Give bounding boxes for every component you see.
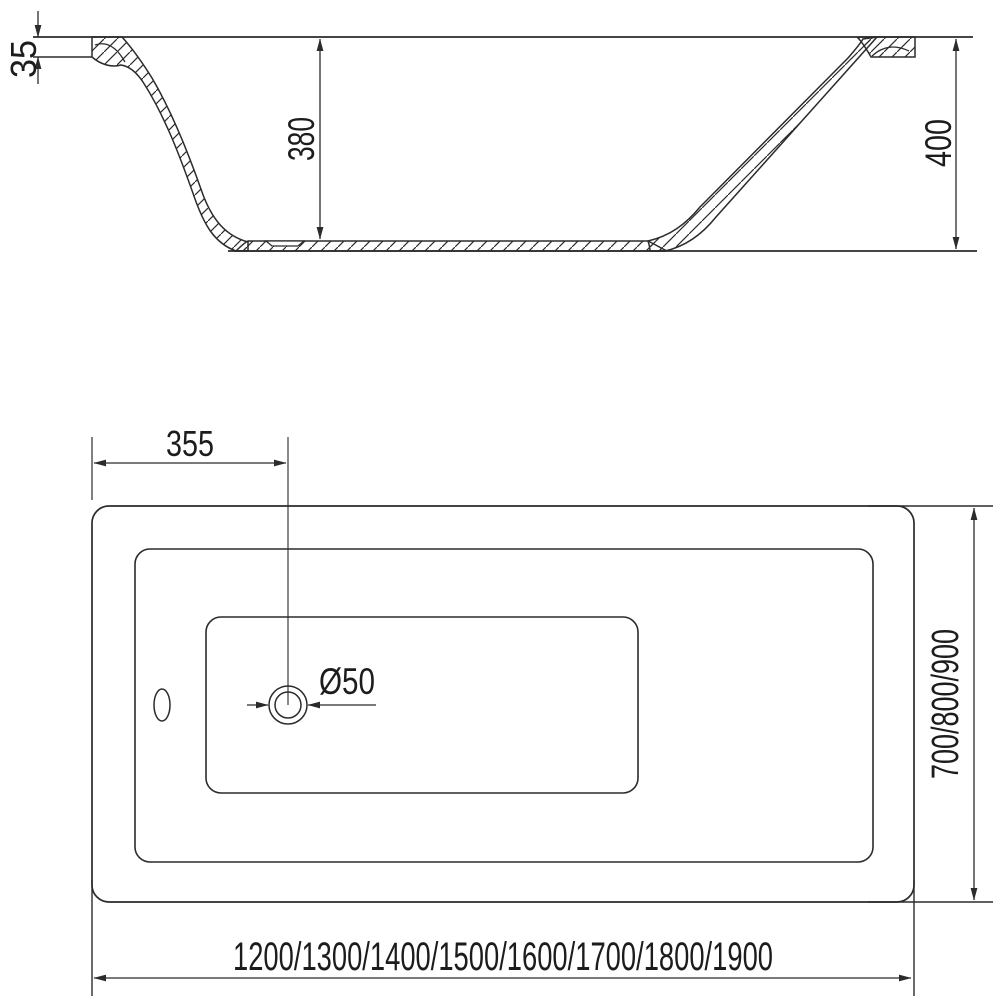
side-view: 35 380 400: [3, 11, 977, 251]
dim-drain-diameter: Ø50: [247, 661, 376, 705]
tub-backrest-slope-section: [648, 37, 877, 251]
dim-overall-height-label: 400: [918, 119, 959, 167]
tub-left-wall-section: [92, 37, 248, 251]
dim-drain-diameter-label: Ø50: [319, 661, 375, 702]
dim-rim-thickness-label: 35: [3, 40, 44, 78]
tub-basin-floor-rect: [206, 617, 638, 793]
dim-overall-height: 400: [918, 39, 959, 249]
dim-inner-depth-label: 380: [281, 117, 322, 161]
dim-drain-offset-label: 355: [166, 423, 214, 464]
plan-view: 355 Ø50 700/800/900 1200/1300/1400/1500/…: [92, 423, 993, 996]
dim-length-options: 1200/1300/1400/1500/1600/1700/1800/1900: [94, 935, 911, 979]
dim-rim-thickness: 35: [3, 11, 44, 84]
dim-width-options-label: 700/800/900: [925, 629, 967, 779]
tub-inner-rim-rect: [135, 549, 873, 862]
dim-drain-offset: 355: [92, 423, 286, 500]
overflow-hole: [154, 689, 170, 721]
dim-length-options-label: 1200/1300/1400/1500/1600/1700/1800/1900: [233, 935, 773, 979]
tub-right-rim-section: [858, 37, 915, 57]
bathtub-technical-drawing: 35 380 400 355: [0, 0, 1000, 1000]
drain-recess: [266, 241, 304, 246]
dim-inner-depth: 380: [281, 39, 322, 239]
dim-width-options: 700/800/900: [925, 508, 974, 900]
tub-outer-rim-rect: [92, 506, 914, 902]
